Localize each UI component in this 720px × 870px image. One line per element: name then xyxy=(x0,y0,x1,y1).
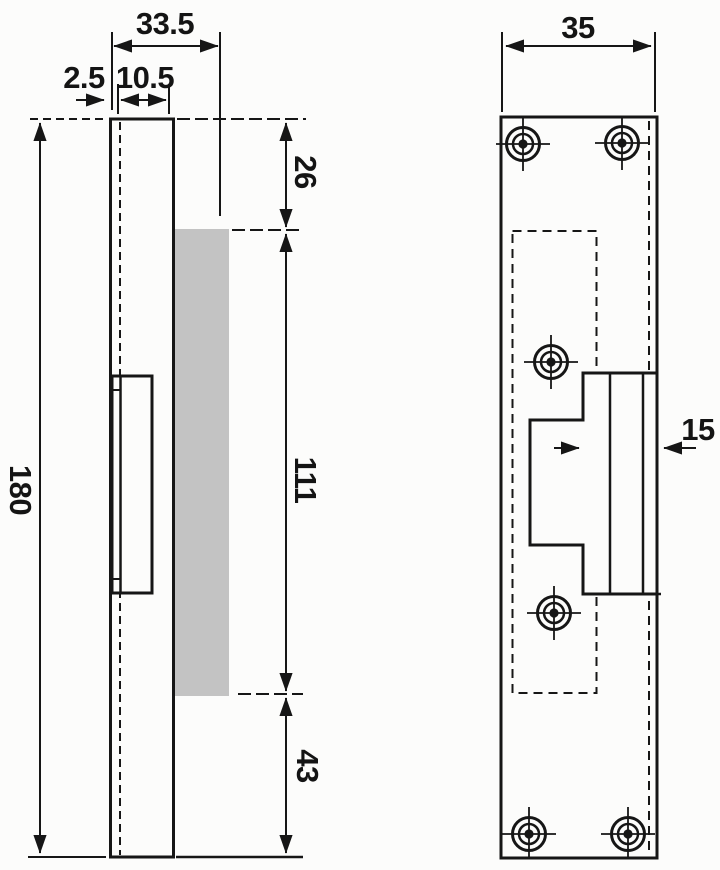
dim-label-top-to-cutout: 26 xyxy=(288,155,323,189)
strike-plate-drawing: 33.5 2.5 10.5 180 26 111 43 xyxy=(0,0,720,870)
dim-label-latch-width: 15 xyxy=(681,412,715,447)
dim-label-cutout-to-bottom: 43 xyxy=(290,749,325,783)
dim-label-faceplate-thickness: 2.5 xyxy=(63,60,105,95)
front-view xyxy=(496,116,661,858)
dim-label-cutout-height: 111 xyxy=(288,457,323,504)
cutout-highlight-block xyxy=(174,229,229,696)
dim-label-overall-depth: 33.5 xyxy=(136,6,195,41)
side-latch-box xyxy=(112,376,152,593)
side-view xyxy=(111,119,230,857)
dim-label-body-depth: 10.5 xyxy=(116,60,175,95)
dim-label-overall-height: 180 xyxy=(3,465,38,515)
dim-label-overall-width: 35 xyxy=(561,10,595,45)
technical-drawing-page: 33.5 2.5 10.5 180 26 111 43 xyxy=(0,0,720,870)
